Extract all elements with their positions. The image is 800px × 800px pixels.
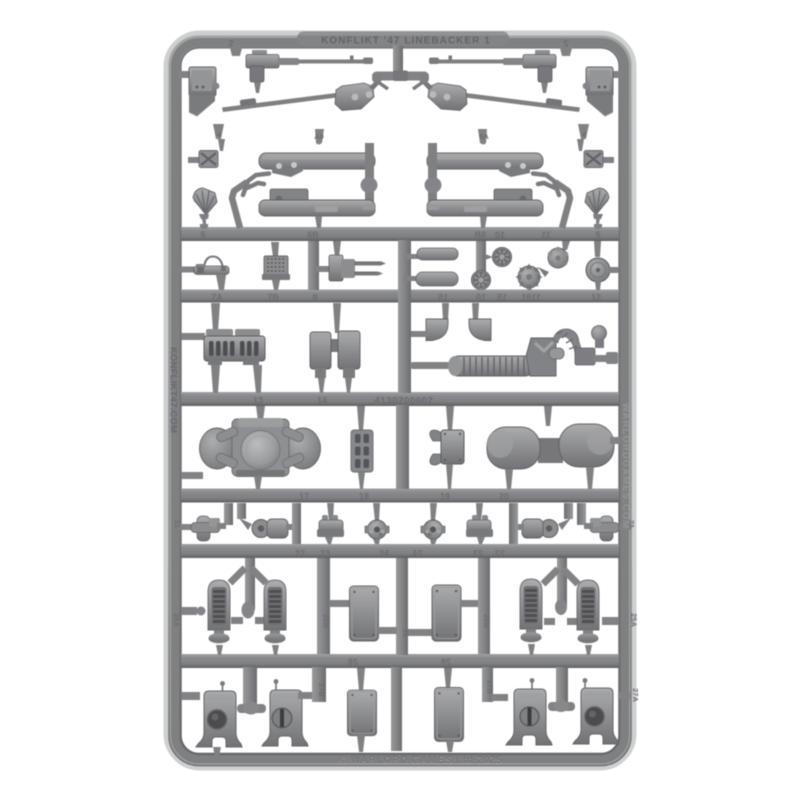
svg-text:17: 17 bbox=[299, 492, 309, 502]
svg-text:25A: 25A bbox=[630, 613, 639, 627]
svg-text:1191: 1191 bbox=[521, 293, 541, 303]
svg-text:24: 24 bbox=[379, 549, 389, 559]
svg-text:28: 28 bbox=[348, 657, 358, 667]
svg-text:5: 5 bbox=[200, 230, 205, 240]
svg-text:8: 8 bbox=[312, 293, 317, 303]
svg-text:WARLORDGAMES.COM: WARLORDGAMES.COM bbox=[620, 403, 631, 529]
svg-text:4130200002: 4130200002 bbox=[375, 396, 434, 407]
svg-text:27B: 27B bbox=[486, 680, 495, 694]
svg-text:25A: 25A bbox=[172, 613, 181, 627]
svg-text:KONFLIKT47.COM: KONFLIKT47.COM bbox=[168, 347, 179, 433]
svg-text:25B: 25B bbox=[322, 614, 331, 628]
svg-text:KONFLIKT '47 LINEBACKER 1: KONFLIKT '47 LINEBACKER 1 bbox=[321, 36, 491, 47]
svg-text:10: 10 bbox=[495, 230, 505, 240]
svg-text:27A: 27A bbox=[631, 688, 640, 702]
svg-text:13: 13 bbox=[253, 396, 263, 406]
svg-text:7B: 7B bbox=[267, 293, 279, 303]
svg-text:20: 20 bbox=[499, 492, 509, 502]
svg-text:5: 5 bbox=[595, 230, 600, 240]
svg-text:18: 18 bbox=[359, 492, 369, 502]
svg-text:23: 23 bbox=[320, 549, 330, 559]
svg-text:23: 23 bbox=[473, 549, 483, 559]
svg-text:10: 10 bbox=[476, 293, 486, 303]
svg-text:15: 15 bbox=[438, 293, 448, 303]
svg-text:11: 11 bbox=[541, 230, 551, 240]
svg-text:22: 22 bbox=[295, 549, 305, 559]
svg-text:6B: 6B bbox=[474, 230, 486, 240]
svg-text:6B: 6B bbox=[307, 230, 319, 240]
svg-text:27B: 27B bbox=[317, 683, 326, 697]
svg-text:26: 26 bbox=[401, 629, 410, 637]
svg-text:© WARLORD GAMES Ltd 2025: © WARLORD GAMES Ltd 2025 bbox=[339, 755, 503, 766]
svg-text:12: 12 bbox=[591, 293, 601, 303]
svg-text:15: 15 bbox=[497, 293, 507, 303]
svg-text:28: 28 bbox=[441, 657, 451, 667]
svg-text:22: 22 bbox=[495, 549, 505, 559]
svg-text:19: 19 bbox=[440, 492, 450, 502]
svg-text:25B: 25B bbox=[482, 614, 491, 628]
svg-text:14: 14 bbox=[317, 396, 327, 406]
svg-text:21: 21 bbox=[173, 520, 182, 528]
svg-text:2: 2 bbox=[228, 39, 233, 49]
svg-text:7A: 7A bbox=[211, 293, 223, 303]
svg-text:6A: 6A bbox=[314, 132, 324, 141]
svg-text:24: 24 bbox=[413, 549, 423, 559]
svg-text:6A: 6A bbox=[479, 132, 489, 141]
svg-text:2: 2 bbox=[563, 39, 568, 49]
